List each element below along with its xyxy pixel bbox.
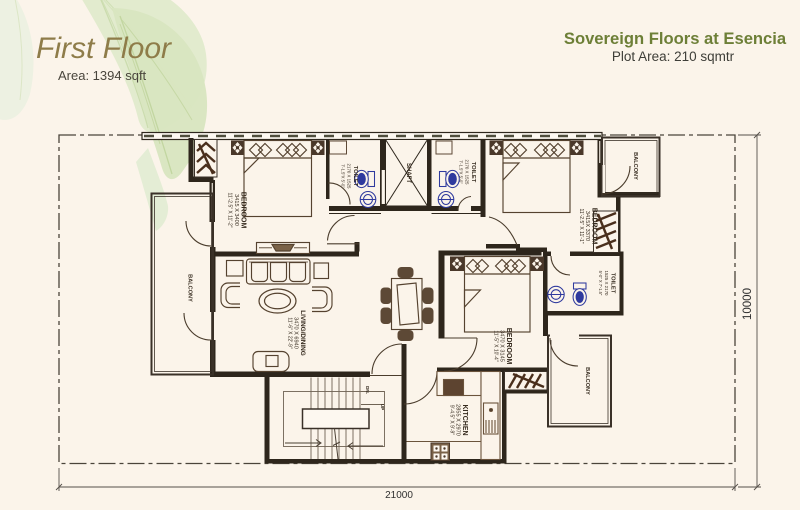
svg-text:TOILET: TOILET: [352, 166, 358, 187]
svg-text:11'-5" X 10'-4": 11'-5" X 10'-4": [493, 330, 499, 361]
svg-text:11'-2.5" X 11'-1": 11'-2.5" X 11'-1": [578, 208, 584, 243]
svg-text:BALCONY: BALCONY: [632, 152, 638, 180]
svg-text:2170 X 1525: 2170 X 1525: [347, 164, 352, 189]
svg-text:2170 X 1525: 2170 X 1525: [465, 160, 470, 185]
svg-text:Area: 1394 sqft: Area: 1394 sqft: [58, 68, 147, 83]
svg-text:Sovereign Floors at Esencia: Sovereign Floors at Esencia: [564, 29, 787, 48]
svg-text:KITCHEN: KITCHEN: [461, 404, 468, 435]
svg-text:BALCONY: BALCONY: [187, 274, 193, 302]
svg-text:BEDROOM: BEDROOM: [240, 192, 247, 229]
svg-text:9'-4.5" X 9'-9": 9'-4.5" X 9'-9": [449, 405, 455, 435]
svg-text:UP: UP: [380, 404, 385, 410]
svg-text:LIVING/DINING: LIVING/DINING: [299, 310, 306, 355]
svg-text:10000: 10000: [742, 288, 754, 320]
svg-text:7'-1.5"X 5'-0": 7'-1.5"X 5'-0": [341, 164, 346, 188]
svg-text:BEDROOM: BEDROOM: [505, 328, 512, 365]
svg-text:BALCONY: BALCONY: [584, 367, 590, 395]
svg-text:TOILET: TOILET: [470, 162, 476, 183]
svg-text:21000: 21000: [385, 490, 413, 501]
svg-text:3415 X 3400: 3415 X 3400: [233, 194, 239, 226]
svg-text:BEDROOM: BEDROOM: [591, 208, 598, 245]
svg-text:DN.: DN.: [365, 386, 370, 394]
svg-text:11'-2.5" X 11'-2": 11'-2.5" X 11'-2": [227, 192, 233, 227]
svg-text:SHAFT: SHAFT: [405, 163, 411, 183]
svg-text:1525 X 2170: 1525 X 2170: [604, 271, 609, 296]
svg-text:11'-6" X 22'-9": 11'-6" X 22'-9": [287, 317, 293, 348]
svg-text:First Floor: First Floor: [36, 32, 172, 65]
svg-text:5'-0" X 7'-1.5": 5'-0" X 7'-1.5": [598, 271, 603, 296]
svg-text:Plot Area: 210 sqmtr: Plot Area: 210 sqmtr: [612, 49, 735, 64]
svg-text:TOILET: TOILET: [610, 273, 616, 294]
svg-text:7'-1.5"X 5'-0": 7'-1.5"X 5'-0": [459, 160, 464, 184]
